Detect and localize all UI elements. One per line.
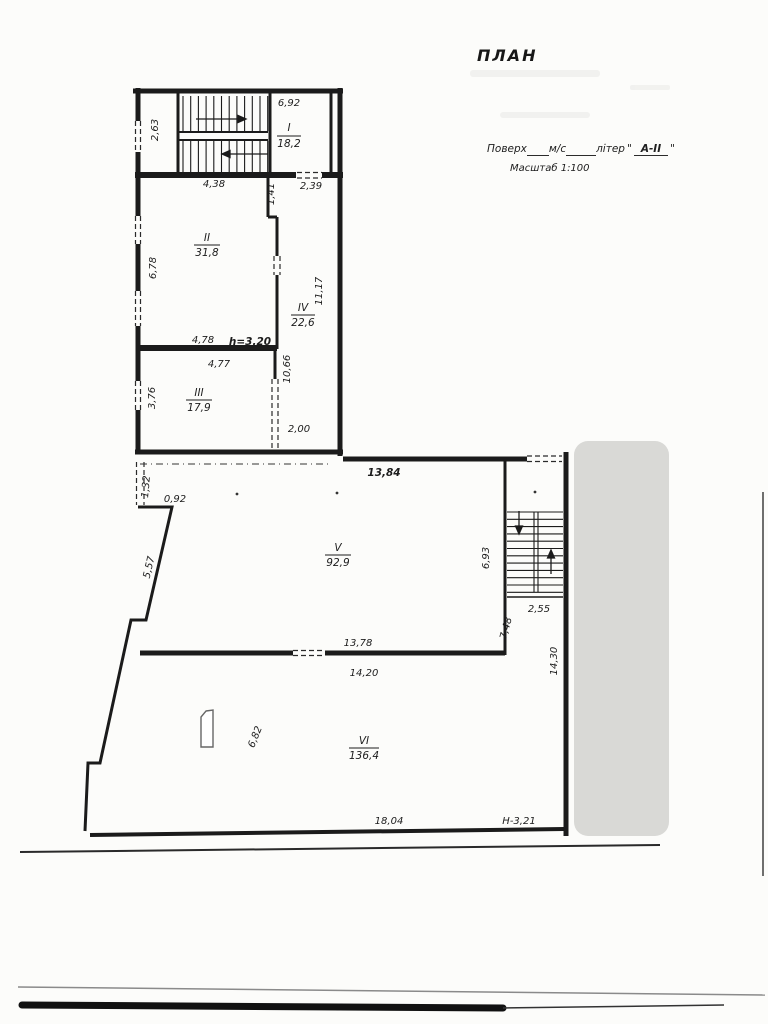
- floor-plan-drawing: I 18,2 II 31,8 III 17,9 IV 22,6 V 92,9 V…: [0, 0, 768, 1024]
- dim-room6-h: 6,82: [246, 725, 265, 750]
- stair-top-treads: [183, 96, 268, 172]
- dim-room6-top: 14,20: [350, 668, 379, 679]
- room-3-num: III: [194, 387, 203, 399]
- walls-medium: [85, 93, 505, 831]
- dim-corridor-low: 10,66: [282, 355, 293, 384]
- dim-ceiling-height: h=3,20: [229, 336, 271, 348]
- room-3-area: 17,9: [187, 402, 211, 414]
- wall-bottom-inner: [90, 829, 564, 835]
- dim-left-stub: 1,32: [140, 475, 153, 498]
- room-2-num: II: [204, 232, 210, 244]
- reference-dots: [236, 491, 537, 496]
- dim-level-mark: Н-3,21: [502, 816, 535, 827]
- scanned-floor-plan-page: ПЛАН Поверхм/слітер"А-ІІ" Масштаб 1:100: [0, 0, 768, 1024]
- stair-right-treads: [507, 512, 563, 592]
- scan-smudges: [470, 70, 670, 118]
- dim-niche-w: 1,41: [266, 183, 277, 205]
- wall-bottom-outer: [20, 845, 660, 852]
- scan-fold-thick: [22, 1005, 503, 1008]
- dim-room6-bottom: 18,04: [375, 816, 404, 827]
- dim-corridor-bottom: 2,00: [288, 424, 310, 435]
- dim-door-top: 2,39: [300, 181, 322, 192]
- room-5-num: V: [334, 542, 342, 554]
- dim-room3-top: 4,77: [208, 359, 231, 370]
- scan-fold-tail: [503, 1005, 724, 1008]
- dim-left-mid-h: 6,78: [148, 257, 159, 279]
- dim-stair2-h: 6,93: [481, 547, 492, 569]
- room-4-num: IV: [298, 302, 309, 314]
- room-4-area: 22,6: [291, 317, 315, 329]
- dim-hall-top: 13,84: [367, 467, 400, 479]
- room-6-num: VI: [359, 735, 369, 747]
- dim-room2-bottom: 4,78: [192, 335, 214, 346]
- dim-top-width: 6,92: [278, 98, 300, 109]
- room-labels: I 18,2 II 31,8 III 17,9 IV 22,6 V 92,9 V…: [187, 122, 379, 762]
- room-fraction-lines: [186, 136, 379, 748]
- walls-thick: [133, 88, 566, 836]
- dim-stair-left-h: 2,63: [150, 119, 161, 141]
- dim-room2-top: 4,38: [203, 179, 225, 190]
- stair-top-landing: [178, 132, 268, 140]
- dim-hall-bottom: 13,78: [344, 638, 373, 649]
- room-1-num: I: [287, 122, 290, 134]
- room-1-area: 18,2: [277, 138, 301, 150]
- dim-landing-h: 7,48: [498, 616, 514, 640]
- redacted-area: [574, 441, 669, 836]
- scan-fold-thin: [18, 987, 765, 995]
- dim-right-side-h: 14,30: [549, 647, 560, 676]
- room-6-area: 136,4: [349, 750, 379, 762]
- dim-left-low-h: 3,76: [147, 387, 158, 409]
- pillar: [201, 710, 213, 747]
- room-2-area: 31,8: [195, 247, 219, 259]
- dim-stair2-w: 2,55: [528, 604, 550, 615]
- room-5-area: 92,9: [326, 557, 350, 569]
- dim-corridor-len: 11,17: [314, 276, 325, 305]
- dim-left-step: 0,92: [164, 494, 186, 505]
